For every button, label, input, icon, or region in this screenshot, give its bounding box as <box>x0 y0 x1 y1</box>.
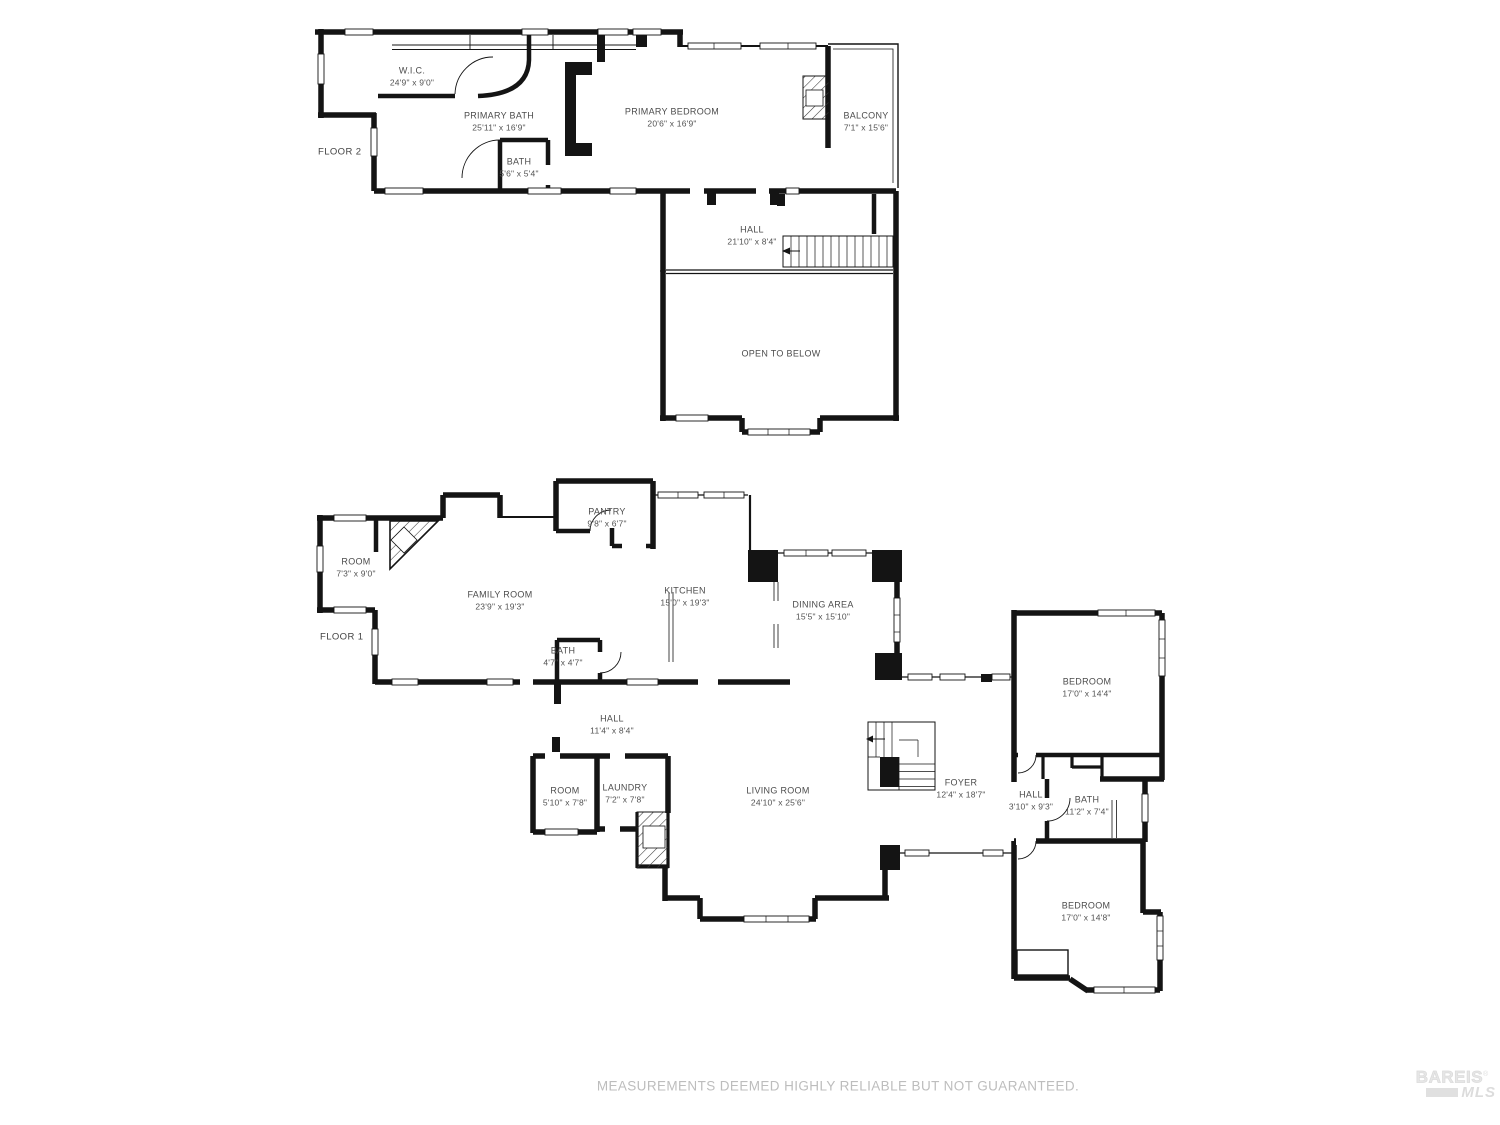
floorplan-canvas <box>0 0 1500 1125</box>
floor2-tag: FLOOR 2 <box>318 147 361 158</box>
floorplan-page: FLOOR 2 W.I.C. 24'9" x 9'0" PRIMARY BATH… <box>0 0 1500 1125</box>
floor1-plan <box>317 481 1165 993</box>
floor1-tag: FLOOR 1 <box>320 632 363 643</box>
floor2-plan <box>315 29 899 435</box>
registered-mark: ® <box>1483 1071 1488 1078</box>
logo-sub-text: MLS <box>1461 1084 1496 1101</box>
disclaimer-text: MEASUREMENTS DEEMED HIGHLY RELIABLE BUT … <box>597 1079 1079 1094</box>
bareis-mls-logo: BAREIS® MLS <box>1408 1066 1496 1101</box>
stairs-floor1 <box>866 722 935 790</box>
stairs-floor2 <box>782 236 893 267</box>
plan-drawing <box>0 0 1500 1125</box>
logo-bar <box>1426 1088 1458 1097</box>
